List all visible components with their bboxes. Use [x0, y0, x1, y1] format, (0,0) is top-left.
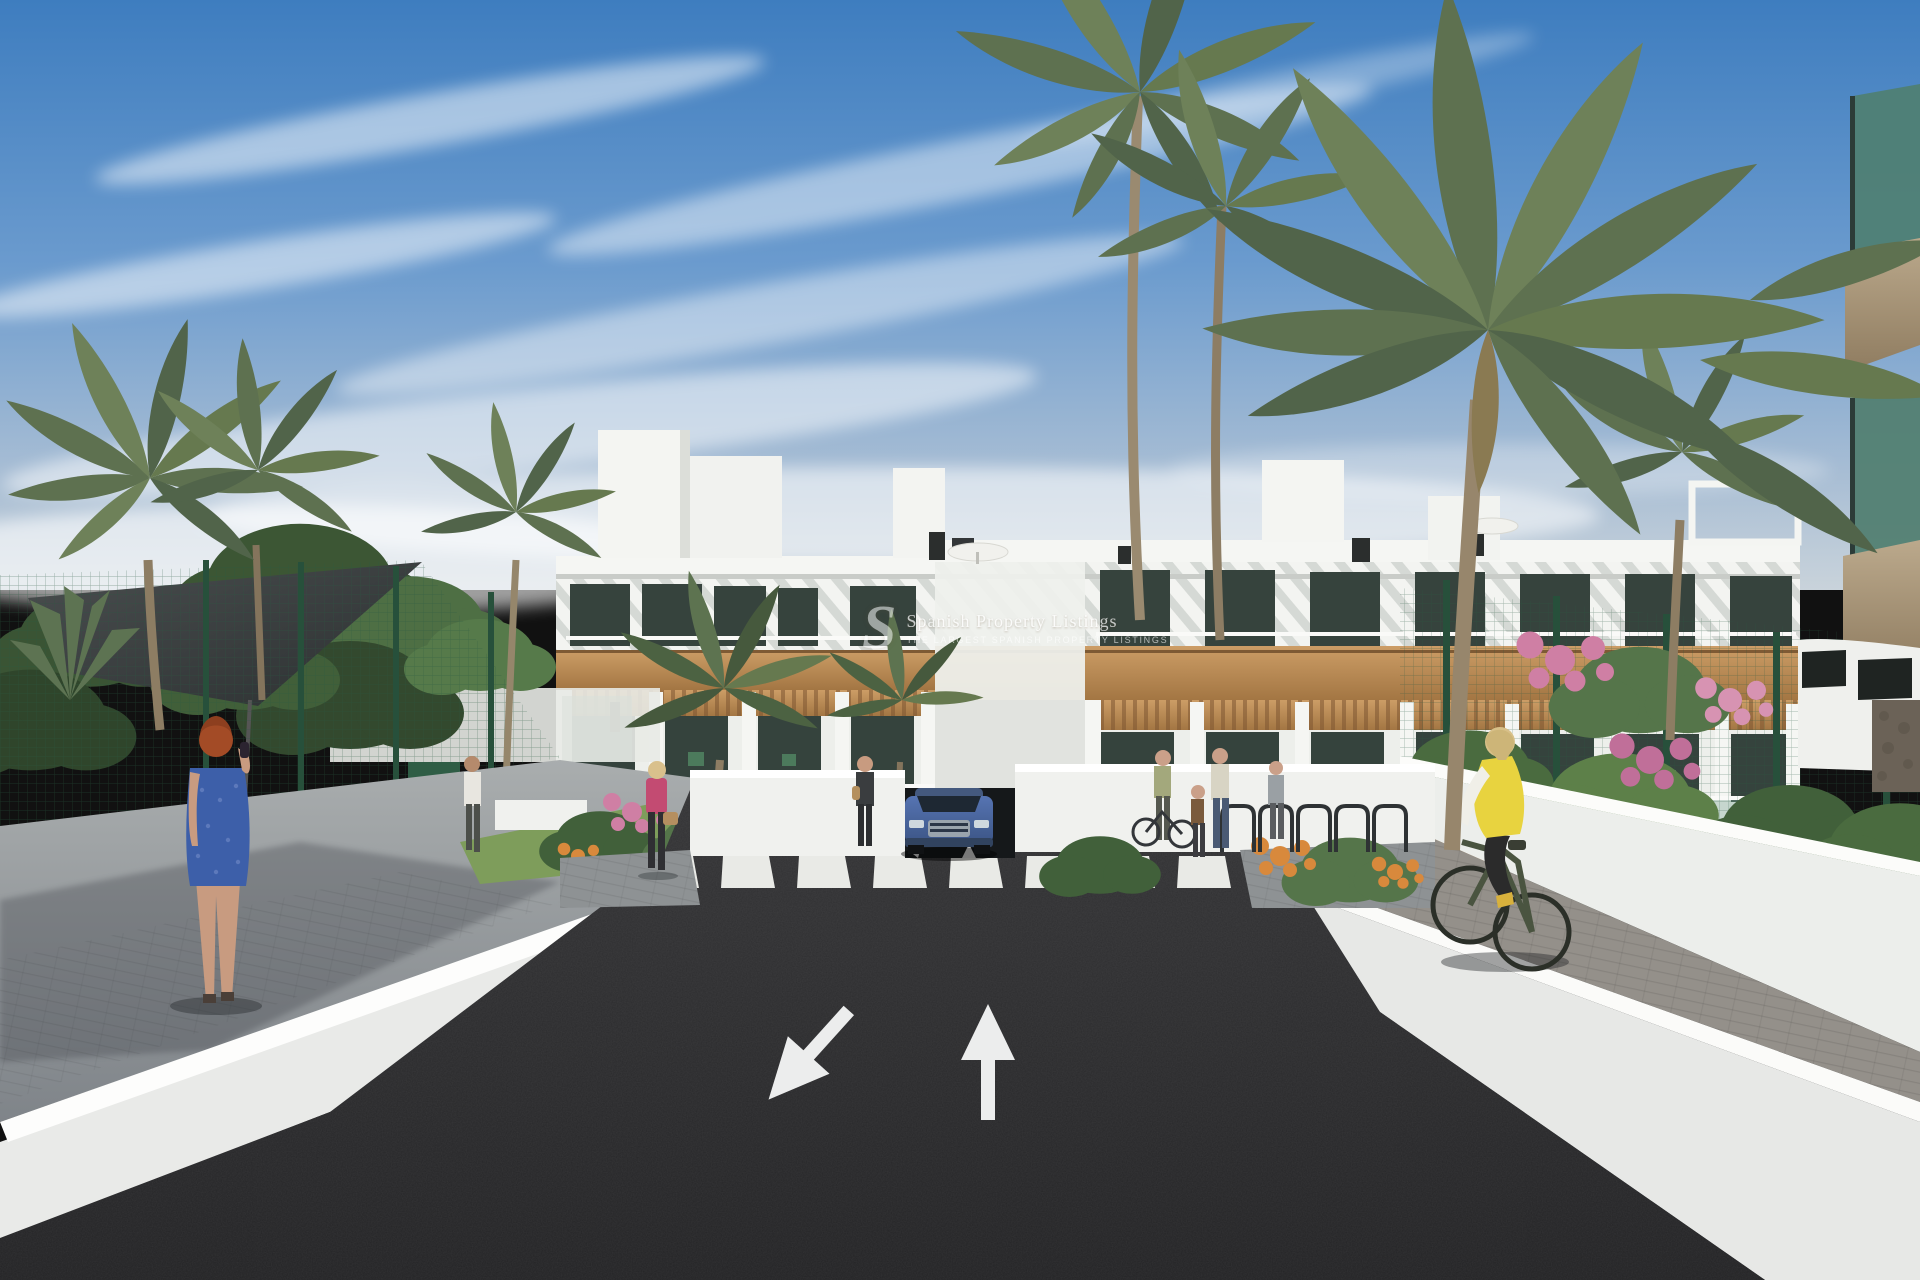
left-sidewalk-texture [560, 850, 700, 908]
handbag [663, 812, 678, 825]
child [1191, 785, 1205, 799]
child-leg [1193, 823, 1198, 857]
parapet-shadow-line [556, 574, 1800, 579]
wall-vent [1802, 650, 1846, 688]
scene-svg [0, 0, 1920, 1280]
saddle [1508, 840, 1526, 850]
child-leg [1200, 823, 1205, 857]
architectural-render-scene: S Spanish Property Listings THE LARGEST … [0, 0, 1920, 1280]
shoulder-bag [852, 786, 860, 800]
blue-suv [901, 788, 997, 861]
balcony-glass-panel [1853, 84, 1920, 262]
child-top [1191, 799, 1204, 825]
glass-frame-edge [1850, 96, 1855, 262]
wall-vent [1858, 658, 1912, 700]
parapet-left [556, 556, 935, 574]
phone [240, 742, 249, 758]
